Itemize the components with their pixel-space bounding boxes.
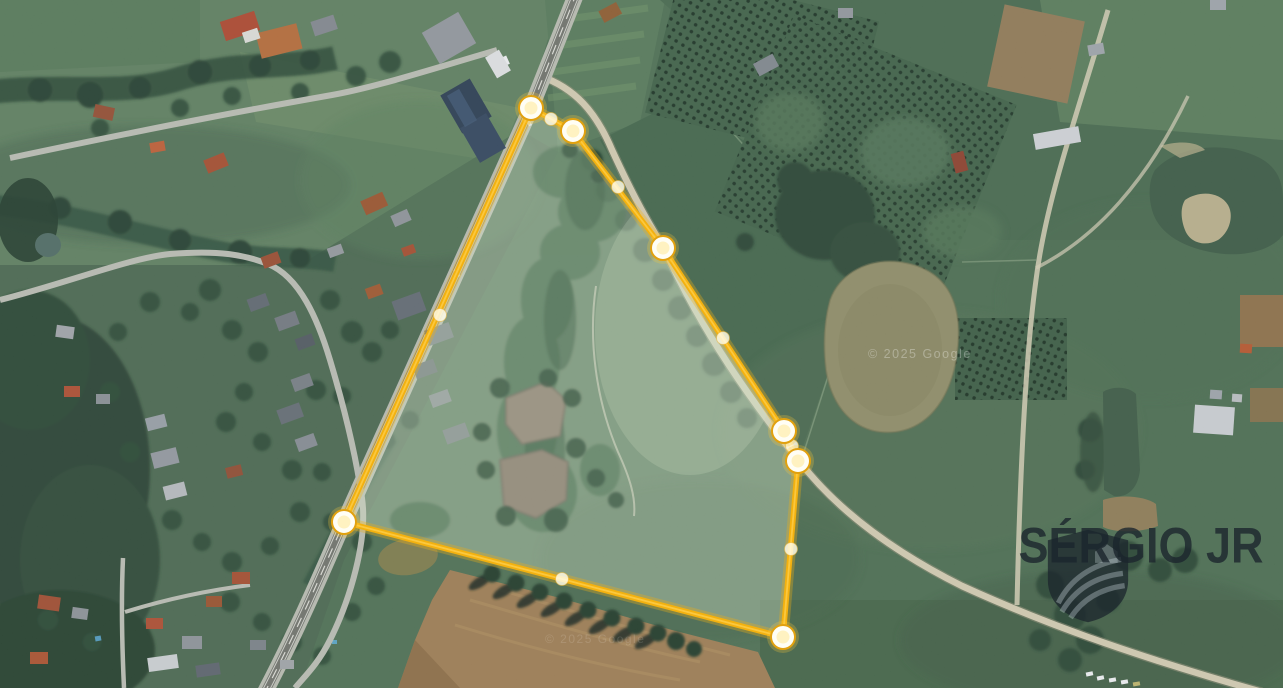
satellite-map-view[interactable]: © 2025 Google © 2025 Google SÉRGIO JR <box>0 0 1283 688</box>
noise-texture <box>0 0 1283 688</box>
satellite-imagery <box>0 0 1283 688</box>
